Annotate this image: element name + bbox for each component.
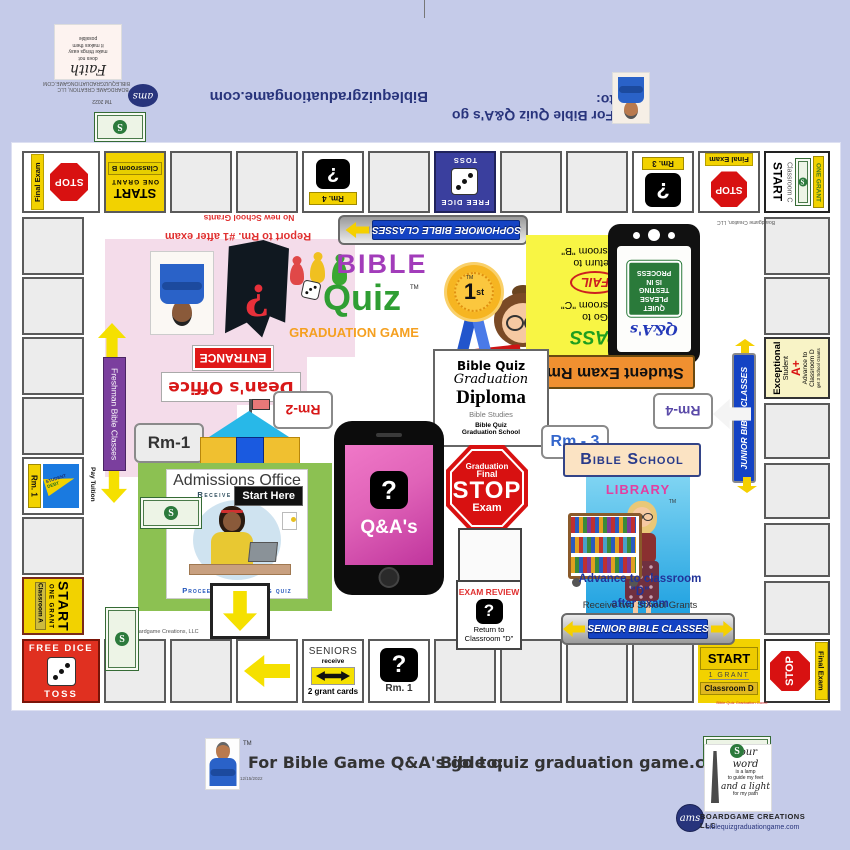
logo-subtitle: GRADUATION GAME xyxy=(284,325,424,340)
stop-sign: STOP xyxy=(770,651,810,691)
board-cell-blank xyxy=(764,217,830,275)
seniors-cards: 2 grant cards xyxy=(308,687,358,696)
bill-caption: Bible Quiz Graduation Game xyxy=(712,700,772,705)
one-grant-strip: ONE GRANT xyxy=(813,156,824,208)
ams-logo-top: ams xyxy=(128,84,158,107)
start-label: START xyxy=(700,647,758,670)
cell-free-dice-blue: FREE DICE TOSS xyxy=(434,151,496,213)
senior-banner: SENIOR BIBLE CLASSES xyxy=(561,613,735,645)
sophomore-banner: SOPHOMORE BIBLE CLASSES xyxy=(338,215,528,245)
dollar-bill-admissions: S xyxy=(140,497,202,529)
board-cell-blank xyxy=(764,463,830,519)
lamp-line5: for my path xyxy=(721,792,770,798)
corner-final-exam-b: STOP Final Exam xyxy=(22,151,100,213)
figure-arms xyxy=(619,86,643,93)
banner-arrow-icon xyxy=(711,621,733,637)
ribbon-suffix: st xyxy=(476,287,484,297)
desk xyxy=(189,564,291,575)
cell-question-rm4: Rm. 4 ? xyxy=(302,151,364,213)
diploma-line2: Graduation xyxy=(454,373,528,387)
rm1-bubble: Rm-1 xyxy=(134,423,204,463)
year-label: 2022 xyxy=(92,98,103,104)
qa-phone: ? Q&A's xyxy=(334,421,444,595)
cell-student-debt-rm1: Rm. 1 STUDENT DEBT xyxy=(22,457,84,515)
cell-start-classroom-b: START ONE GRANT Classroom B xyxy=(104,151,166,213)
board-cell-blank xyxy=(170,639,232,703)
no-grants-note: No new School Grants xyxy=(194,213,304,223)
top-promo-site: Biblequizgraduationgame.com xyxy=(212,88,428,105)
bible-school-sign: Bible School xyxy=(563,443,701,477)
stop-word: STOP xyxy=(453,479,522,503)
cell-exceptional-student: Exceptional Student A+ Advance to Classr… xyxy=(764,337,830,399)
freshman-banner-sign: Freshman Bible Classes xyxy=(110,368,120,460)
portrait-arms xyxy=(162,282,202,290)
room-label: Rm. 1 xyxy=(385,683,412,694)
logo-tm: TM xyxy=(410,285,419,291)
dollar-bill-left: S xyxy=(105,607,139,671)
tm-mark: TM xyxy=(105,98,112,104)
banner-arrow-icon xyxy=(563,621,585,637)
freshman-banner: Freshman Bible Classes xyxy=(103,357,126,471)
start-here-button: Start Here xyxy=(234,486,303,506)
board-cell-blank xyxy=(566,151,628,213)
sophomore-banner-sign: SOPHOMORE BIBLE CLASSES xyxy=(373,220,521,240)
corner-final-exam-d: STOP Final Exam xyxy=(764,639,830,703)
left-arrow-icon xyxy=(244,655,290,687)
maker-line1: BOARDGAME CREATION, LLC xyxy=(56,86,130,92)
board-cell-blank xyxy=(22,397,84,455)
double-arrow-box xyxy=(311,667,355,685)
blank-card xyxy=(458,528,522,584)
cell-final-exam-top: STOP Final Exam xyxy=(698,151,760,213)
cell-start-classroom-d: START 1 GRANT Classroom D xyxy=(698,639,760,703)
exceptional-line5: get 3 School Grants xyxy=(816,339,821,397)
ams-logo-text: ams xyxy=(133,90,154,101)
board-cell-blank xyxy=(368,151,430,213)
senior-banner-sign: SENIOR BIBLE CLASSES xyxy=(588,619,708,639)
classroom-label: Classroom C xyxy=(786,162,793,202)
logo-quiz: Quiz xyxy=(312,277,412,319)
pay-tuition-label: Pay Tuition xyxy=(89,467,96,502)
top-promo-label: For Bible Quiz Q&A's go to: xyxy=(438,92,614,124)
free-dice-label: FREE DICE xyxy=(441,199,490,208)
lamp-line3: to guide my feet xyxy=(721,776,770,782)
seniors-receive: receive xyxy=(322,658,344,665)
report-note: Report to Rm. #1 after exam xyxy=(160,230,316,242)
first-place-ribbon: 1st TM xyxy=(446,263,502,355)
cell-question-rm3: ? Rm. 3 xyxy=(632,151,694,213)
board-cell-blank xyxy=(500,151,562,213)
die-icon xyxy=(47,657,76,686)
free-dice-label: FREE DICE xyxy=(29,643,93,654)
double-arrow-icon xyxy=(316,671,350,682)
clerk-face xyxy=(223,512,241,531)
cell-seniors: SENIORS receive 2 grant cards xyxy=(302,639,364,703)
phone-qa-label: Q&A's xyxy=(360,517,417,539)
exam-review-title: EXAM REVIEW xyxy=(459,587,519,597)
question-icon: ? xyxy=(380,648,418,682)
board-cell-blank xyxy=(764,581,830,635)
room-tab: Rm. 4 xyxy=(309,192,357,205)
diploma-line5: Bible Quiz xyxy=(475,422,507,429)
die-icon xyxy=(452,169,479,196)
grant-label: 1 GRANT xyxy=(709,672,750,680)
final-exam-strip: Final Exam xyxy=(31,154,44,210)
stop-exam: Exam xyxy=(472,503,501,514)
library-title: LIBRARY xyxy=(606,482,670,497)
board-cell-blank xyxy=(764,523,830,577)
corner-start-classroom-c: START Classroom C S ONE GRANT xyxy=(764,151,830,213)
diploma-line3: Diploma xyxy=(456,388,526,409)
receive-note: Receive two School Grants xyxy=(572,600,708,611)
rm4-bubble: Rm-4 xyxy=(653,393,713,429)
figure-arms xyxy=(210,769,235,776)
classroom-tab: Classroom A xyxy=(35,582,46,630)
grant-label: ONE GRANT xyxy=(111,179,159,186)
figure-head xyxy=(624,101,638,119)
final-exam-strip: Final Exam xyxy=(815,642,828,700)
testing-tablet: QUIET PLEASE TESTING IS IN PROCESS Q&A's xyxy=(608,224,700,364)
ams-logo-text: ams xyxy=(680,813,701,824)
portrait-photo xyxy=(150,251,214,335)
entrance-sign: ENTRANCE xyxy=(193,346,273,370)
board-cell-blank xyxy=(170,151,232,213)
dollar-bill-icon: S xyxy=(795,158,811,206)
footer-tm: TM xyxy=(243,741,252,747)
seniors-title: SENIORS xyxy=(309,646,358,657)
room-tab: Rm. 3 xyxy=(642,157,684,170)
faith-title: Faith xyxy=(57,61,119,77)
down-arrow-box xyxy=(210,583,270,639)
phone-question-icon: ? xyxy=(370,471,408,509)
exceptional-line1: Exceptional xyxy=(773,339,783,397)
room-tab: Rm. 1 xyxy=(28,464,41,508)
board-cell-blank xyxy=(236,151,298,213)
stop-sign: STOP xyxy=(711,172,747,208)
tablet-qa-label: Q&A's xyxy=(630,321,678,337)
board-cell-blank xyxy=(566,639,628,703)
ribbon-place: 1 xyxy=(464,279,476,305)
cell-left-arrow xyxy=(236,639,298,703)
page-fold-line xyxy=(424,0,425,18)
question-icon: ? xyxy=(645,173,681,207)
footer-figure-card xyxy=(205,738,240,790)
dollar-bill-top: S xyxy=(94,112,146,142)
diploma-line6: Graduation School xyxy=(462,429,520,436)
dollar-s-icon: S xyxy=(113,120,127,134)
banner-arrow-icon xyxy=(346,222,370,238)
reader-glasses xyxy=(506,315,524,331)
stop-sign: STOP xyxy=(50,163,88,201)
board-cell-blank xyxy=(22,517,84,575)
exam-review-dest: Return to Classroom "D" xyxy=(465,626,514,643)
graduation-stop-sign: Graduation Final STOP Exam xyxy=(446,445,528,531)
board-cell-blank xyxy=(22,277,84,335)
footer-date: 12/15/2022 xyxy=(240,776,263,781)
start-label: START xyxy=(56,581,72,632)
start-label: START xyxy=(771,162,785,202)
top-promo-figure xyxy=(612,72,650,124)
question-icon: ? xyxy=(316,159,350,189)
toss-label: TOSS xyxy=(44,689,78,700)
testing-sign: QUIET PLEASE TESTING IS IN PROCESS xyxy=(627,261,681,317)
corner-free-dice-toss: FREE DICE TOSS xyxy=(22,639,100,703)
board-cell-blank xyxy=(764,403,830,459)
ribbon-tm: TM xyxy=(466,275,473,281)
maker-lines: BOARDGAME CREATION, LLC BIBLEQUIZGRADUAT… xyxy=(56,80,130,92)
game-board: STOP Final Exam START ONE GRANT Classroo… xyxy=(12,143,840,710)
question-icon: ? xyxy=(476,599,503,624)
schoolhouse-icon xyxy=(200,399,298,469)
start-label: START xyxy=(114,187,156,202)
toss-label: TOSS xyxy=(453,157,477,166)
board-cell-blank xyxy=(764,277,830,335)
cell-question-rm1: ? Rm. 1 xyxy=(368,639,430,703)
classroom-tab: Classroom D xyxy=(700,682,758,695)
student-debt-pennant: STUDENT DEBT xyxy=(43,464,79,508)
logo-bible: BIBLE xyxy=(330,249,434,280)
exam-room-banner: Student Exam Rm. xyxy=(531,355,695,389)
footer-promo-site: Bible quiz graduation game.com xyxy=(440,753,732,772)
maker-line2: BIBLEQUIZGRADUATIONGAME.COM xyxy=(56,80,130,86)
credit-bottom: Boardgame Creations, LLC xyxy=(132,629,212,635)
grant-label: ONE GRANT xyxy=(48,584,54,629)
board-cell-blank xyxy=(22,337,84,395)
admissions-card: Admissions Office Receive 4 Grants Start… xyxy=(166,469,308,599)
lamp-line1: Your word xyxy=(721,747,770,770)
board-cell-blank xyxy=(22,217,84,275)
diploma-card: Bible Quiz Graduation Diploma Bible Stud… xyxy=(433,349,549,447)
laptop-icon xyxy=(248,542,278,562)
footer-website: biblequizgraduationgame.com xyxy=(706,824,816,831)
down-arrow-icon xyxy=(223,591,257,631)
classroom-tab: Classroom B xyxy=(108,163,162,176)
faith-text: does not make things easy it makes them … xyxy=(57,35,119,61)
credit-top: Boardgame Creation, LLC xyxy=(714,219,778,225)
cell-start-classroom-a: Classroom A ONE GRANT START xyxy=(22,577,84,635)
diploma-line4: Bible Studies xyxy=(469,411,513,419)
faith-card: Faith does not make things easy it makes… xyxy=(54,24,122,80)
final-exam-tab: Final Exam xyxy=(705,154,753,167)
exam-review-card: EXAM REVIEW ? Return to Classroom "D" xyxy=(456,580,522,650)
board-cell-blank xyxy=(632,639,694,703)
tm-year: TM 2022 xyxy=(72,98,112,104)
lighthouse-icon xyxy=(711,751,719,803)
clerk-body xyxy=(211,532,253,566)
